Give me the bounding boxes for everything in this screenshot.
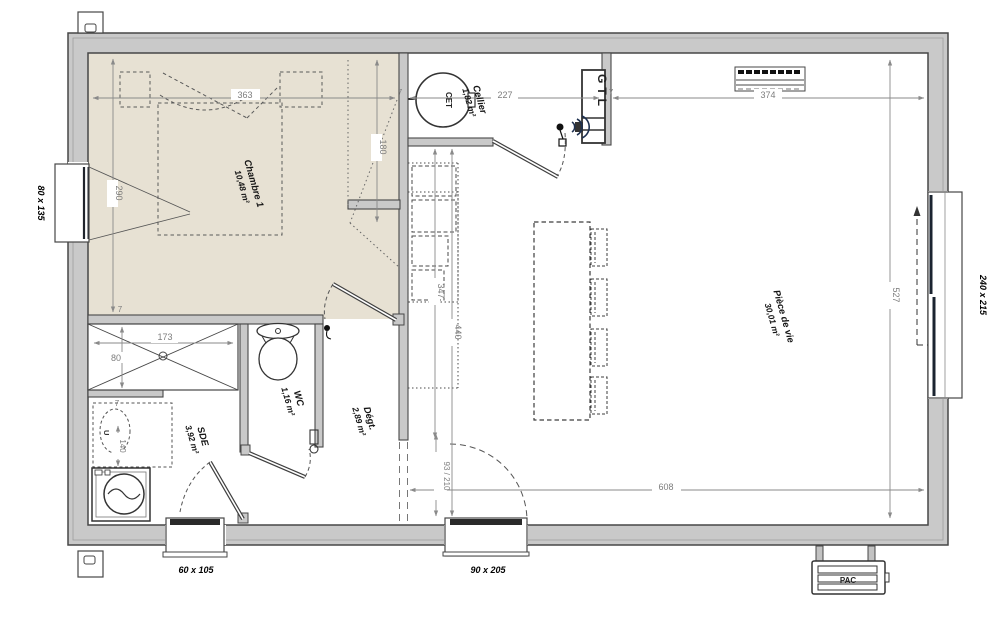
downspout-top-left [78,12,103,33]
dim-wall-7a: 7 [398,88,403,97]
dining-table [534,222,607,420]
cellier-door [493,133,565,177]
pac-label: PAC [840,576,857,585]
dim-173: 173 [157,332,172,342]
label-left-window: 80 x 135 [36,185,46,221]
label-sde-window: 60 x 105 [178,565,214,575]
room-label-sde: SDE 3,92 m² [183,421,212,456]
gtl-label: GTL [595,74,609,110]
cet-label: CET [444,92,453,108]
dim-wall-7d: 7 [115,399,120,408]
dim-347: 347 [436,283,446,298]
dim-608: 608 [658,482,673,492]
label-bay-window: 240 x 215 [978,274,988,316]
sink-u-mark: U [102,430,111,435]
room-label-piece-de-vie: Pièce de vie 30,01 m² [760,289,796,348]
dim-140: 140 [118,439,127,453]
open-passage-dashed [400,442,408,522]
dim-wall-7b: 7 [609,88,614,97]
toilet [257,324,299,381]
label-entry-door: 90 x 205 [470,565,506,575]
room-label-degagement: Dégt. 2,89 m² [350,402,379,438]
floor-plan-page: PAC [0,0,1000,631]
dim-363: 363 [237,90,252,100]
kitchen-counter [408,163,458,388]
dim-290: 290 [114,185,124,200]
sde-window [163,518,227,557]
dim-wall-7c: 7 [118,305,123,314]
dim-440: 440 [453,324,463,339]
wall-radiator [735,67,805,91]
floor-plan-canvas: PAC [0,0,1000,631]
dim-80: 80 [111,353,121,363]
downspout-bottom-left [78,551,103,577]
room-label-wc: WC 1,16 m² [279,383,308,418]
chairs [591,229,607,414]
dim-180: 180 [378,139,388,154]
wc-door [241,445,310,477]
dim-527: 527 [891,287,901,302]
sde-door [180,462,248,523]
washing-machine [92,468,150,521]
bay-window [914,192,963,398]
dim-227: 227 [497,90,512,100]
heat-pump-unit: PAC [812,546,889,594]
dim-entry-93-210: 93 / 210 [442,462,451,491]
dim-374: 374 [760,90,775,100]
entry-door [443,444,529,556]
